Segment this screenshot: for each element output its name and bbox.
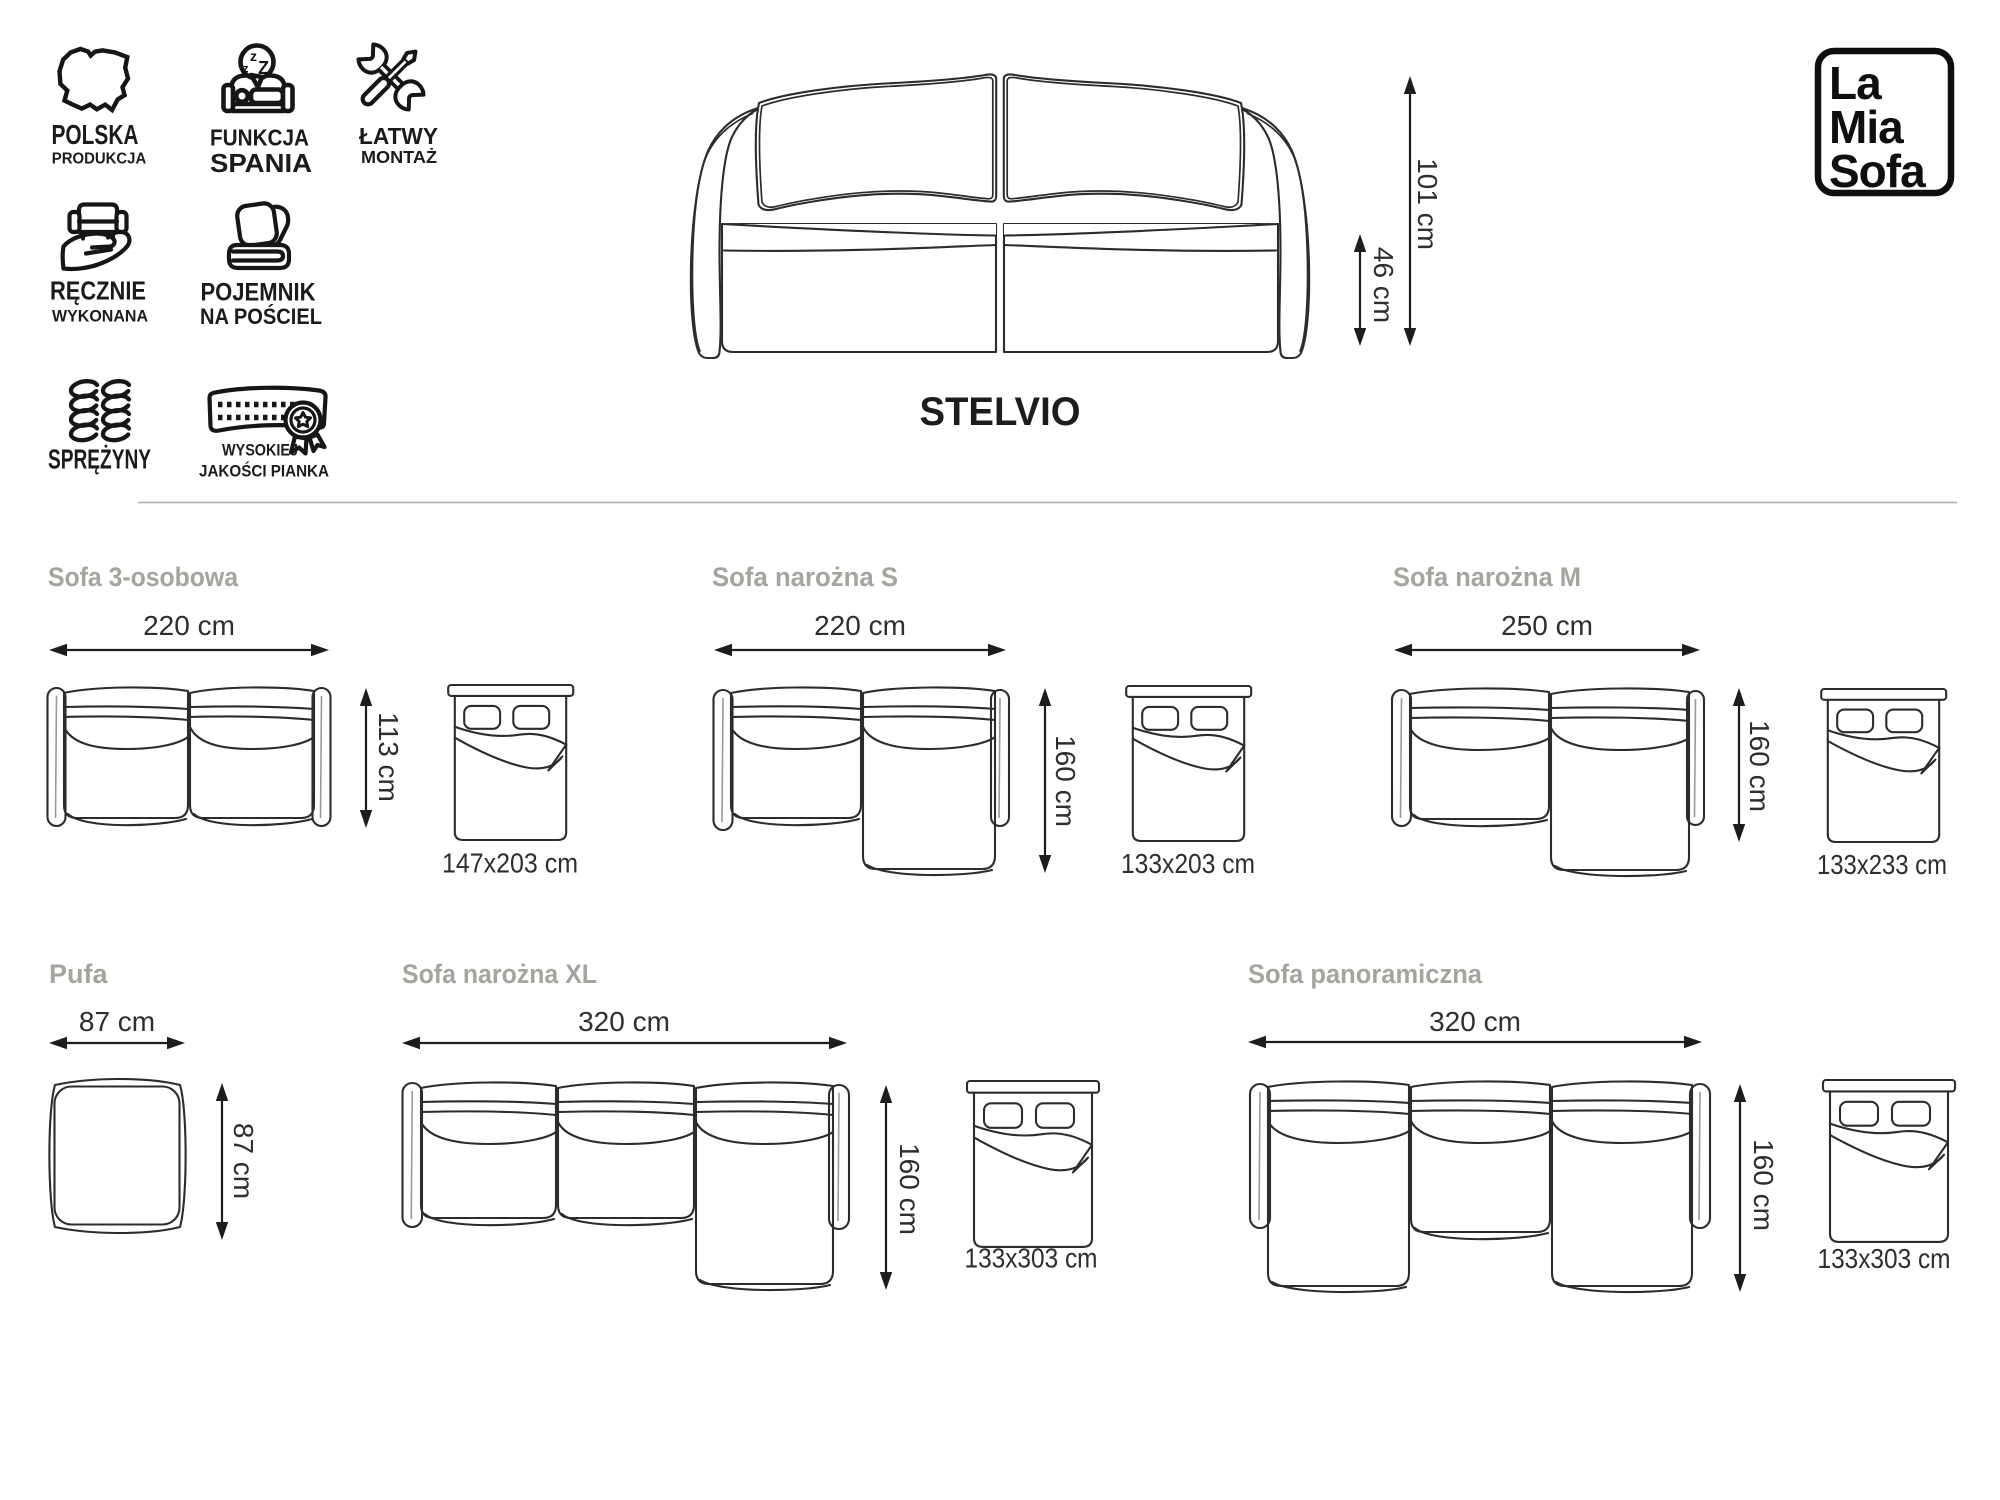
- svg-text:320 cm: 320 cm: [578, 1006, 670, 1037]
- svg-text:101 cm: 101 cm: [1412, 158, 1443, 250]
- svg-text:113 cm: 113 cm: [373, 712, 404, 802]
- svg-text:SPANIA: SPANIA: [210, 150, 312, 178]
- svg-text:z: z: [250, 48, 257, 64]
- svg-text:46 cm: 46 cm: [1368, 247, 1399, 323]
- svg-text:87 cm: 87 cm: [79, 1006, 155, 1037]
- svg-text:Pufa: Pufa: [49, 959, 108, 989]
- svg-text:Sofa: Sofa: [1829, 145, 1926, 197]
- svg-text:Sofa narożna S: Sofa narożna S: [712, 562, 898, 592]
- svg-text:WYSOKIEJ: WYSOKIEJ: [222, 442, 298, 460]
- svg-text:147x203 cm: 147x203 cm: [442, 848, 578, 879]
- svg-text:220 cm: 220 cm: [143, 610, 235, 641]
- svg-text:Sofa panoramiczna: Sofa panoramiczna: [1248, 959, 1483, 989]
- svg-text:JAKOŚCI PIANKA: JAKOŚCI PIANKA: [199, 462, 329, 481]
- svg-text:NA POŚCIEL: NA POŚCIEL: [200, 304, 322, 329]
- svg-text:133x203 cm: 133x203 cm: [1121, 848, 1255, 879]
- svg-text:87 cm: 87 cm: [228, 1123, 259, 1199]
- svg-text:Z: Z: [258, 58, 269, 78]
- svg-text:320 cm: 320 cm: [1429, 1006, 1521, 1037]
- svg-text:Sofa narożna XL: Sofa narożna XL: [402, 959, 597, 989]
- svg-text:133x303 cm: 133x303 cm: [1818, 1243, 1951, 1274]
- svg-text:MONTAŻ: MONTAŻ: [361, 147, 437, 167]
- svg-text:POJEMNIK: POJEMNIK: [201, 279, 316, 307]
- svg-text:133x233 cm: 133x233 cm: [1817, 849, 1947, 880]
- svg-text:POLSKA: POLSKA: [52, 119, 139, 150]
- svg-text:160 cm: 160 cm: [1748, 1139, 1779, 1231]
- svg-text:SPRĘŻYNY: SPRĘŻYNY: [48, 444, 151, 475]
- svg-text:RĘCZNIE: RĘCZNIE: [50, 278, 146, 306]
- svg-text:PRODUKCJA: PRODUKCJA: [52, 151, 147, 168]
- svg-text:220 cm: 220 cm: [814, 610, 906, 641]
- svg-text:160 cm: 160 cm: [1744, 720, 1775, 812]
- svg-text:WYKONANA: WYKONANA: [52, 308, 148, 326]
- svg-text:160 cm: 160 cm: [894, 1143, 925, 1235]
- svg-text:ŁATWY: ŁATWY: [359, 123, 438, 149]
- svg-text:STELVIO: STELVIO: [920, 390, 1081, 434]
- svg-text:133x303 cm: 133x303 cm: [965, 1243, 1098, 1274]
- svg-text:z: z: [243, 63, 249, 75]
- svg-text:Sofa narożna M: Sofa narożna M: [1393, 562, 1581, 592]
- svg-text:160 cm: 160 cm: [1050, 735, 1081, 827]
- svg-text:Sofa 3-osobowa: Sofa 3-osobowa: [48, 562, 239, 592]
- svg-text:FUNKCJA: FUNKCJA: [210, 125, 309, 151]
- svg-text:250 cm: 250 cm: [1501, 610, 1593, 641]
